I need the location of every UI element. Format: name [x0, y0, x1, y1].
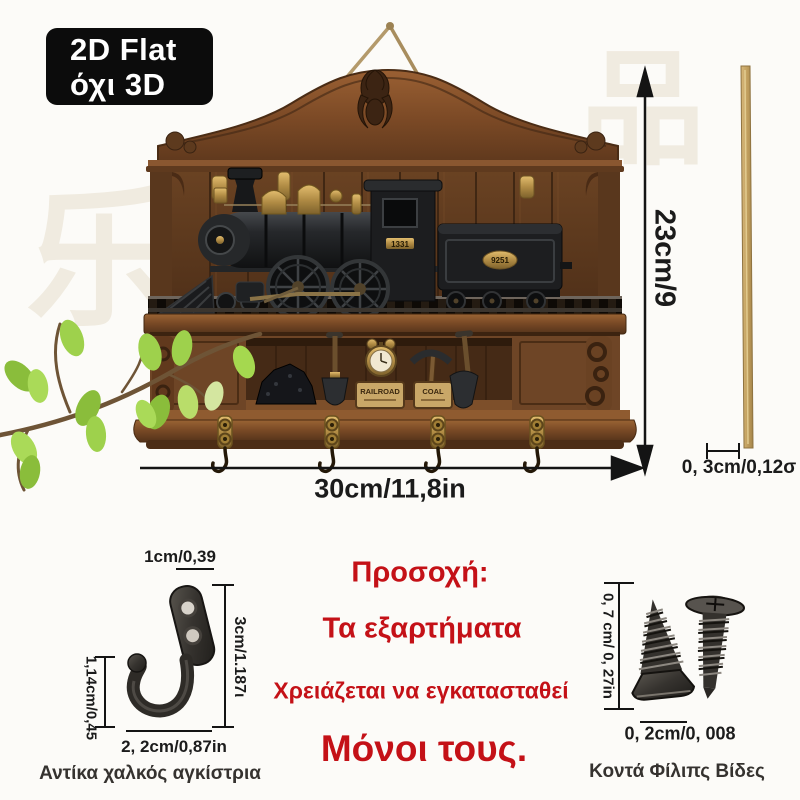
- badge-line-1: 2D Flat: [70, 32, 213, 67]
- hook-top-dimension: 1cm/0,39: [144, 547, 216, 567]
- flat-2d-badge: 2D Flat όχι 3D: [46, 28, 213, 105]
- wooden-stick: [741, 66, 753, 448]
- alarm-clock: [366, 339, 396, 376]
- product-listing-image: 乐 品 2D Flat όχι 3D: [0, 0, 800, 800]
- stick-dimension-label: 0, 3cm/0,12σ: [682, 457, 796, 479]
- railroad-sign: RAILROAD: [356, 382, 404, 408]
- svg-text:COAL: COAL: [422, 387, 444, 396]
- screw-bottom-dimension: 0, 2cm/0, 008: [624, 724, 735, 745]
- screws-caption: Κοντά Φίλιπς Βίδες: [589, 761, 765, 783]
- coal-sign: COAL: [414, 382, 452, 408]
- cab-plate: 1331: [391, 240, 409, 249]
- warning-line-3: Χρειάζεται να εγκατασταθεί: [273, 678, 568, 705]
- badge-line-2: όχι 3D: [70, 67, 213, 102]
- width-dimension-label: 30cm/11,8in: [314, 474, 466, 505]
- screw-side-dimension: 0, 7 cm/ 0, 27in: [600, 593, 617, 699]
- carved-ornament: [358, 70, 392, 128]
- hook-bottom-dimension: 2, 2cm/0,87in: [121, 737, 227, 757]
- tender-plate: 9251: [491, 256, 509, 265]
- sample-hook: [128, 583, 217, 711]
- hook-caption: Αντίκα χαλκός αγκίστρια: [39, 763, 261, 785]
- hook-right-dimension: 3cm/1.187ι: [230, 617, 248, 698]
- hook-left-dimension: 1,14cm/0,45: [83, 656, 100, 740]
- sample-screws: [623, 594, 745, 701]
- key-rack: 1331: [134, 70, 637, 471]
- warning-line-2: Τα εξαρτήματα: [323, 613, 522, 646]
- svg-text:RAILROAD: RAILROAD: [360, 387, 400, 396]
- warning-line-4: Μόνοι τους.: [321, 728, 527, 770]
- warning-line-1: Προσοχή:: [351, 557, 488, 590]
- height-dimension-label: 23cm/9: [648, 209, 681, 307]
